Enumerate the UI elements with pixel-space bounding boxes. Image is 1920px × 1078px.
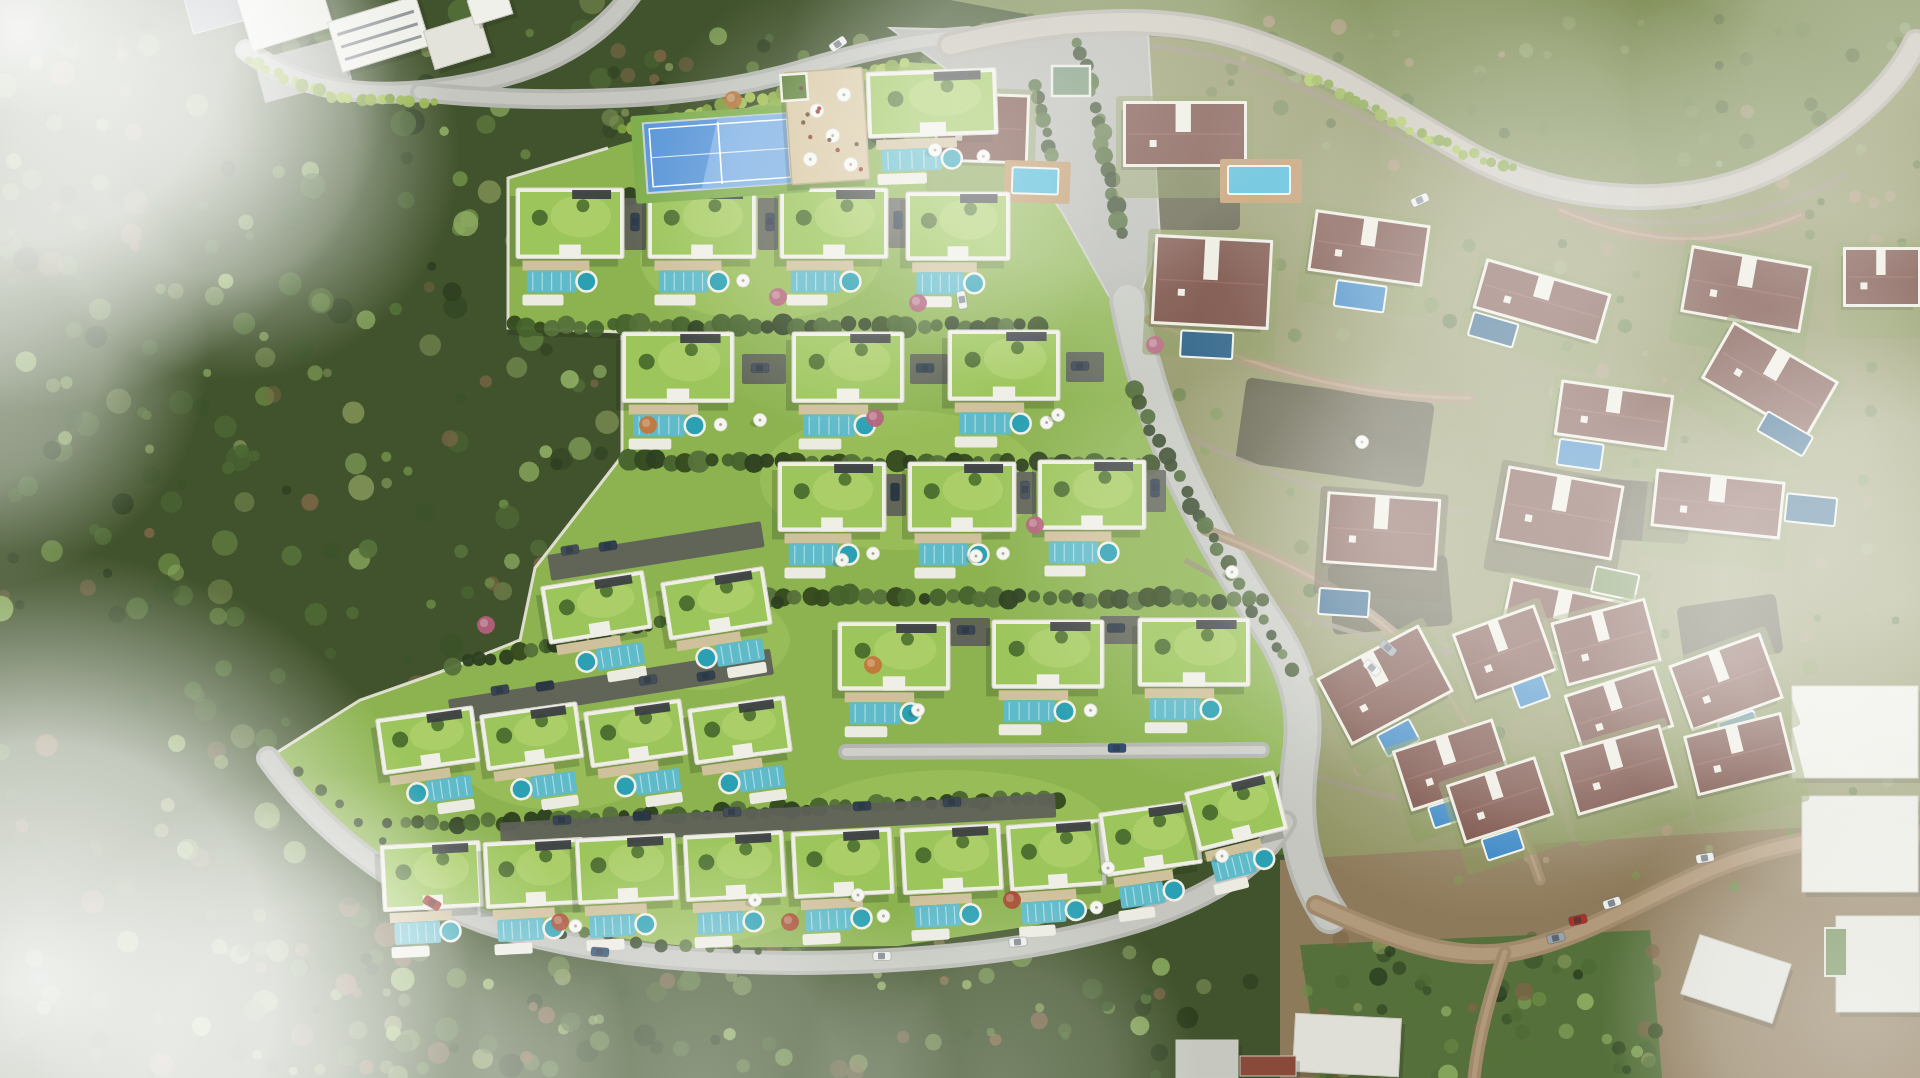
tree-highlight xyxy=(642,419,650,427)
tree-canopy xyxy=(654,50,667,63)
tree-canopy xyxy=(454,544,468,558)
car-windshield xyxy=(858,803,865,810)
stair-core xyxy=(883,676,905,690)
hedge-shrub xyxy=(524,643,539,658)
hedge-shrub xyxy=(839,584,860,605)
tree-canopy xyxy=(1369,968,1387,986)
tree-canopy xyxy=(1335,975,1349,989)
tree-canopy xyxy=(540,343,553,356)
stair-core xyxy=(667,389,689,403)
tree-canopy xyxy=(212,530,238,556)
tree-canopy xyxy=(1468,1003,1477,1012)
hedge-shrub xyxy=(557,316,575,334)
car-windshield xyxy=(496,686,504,693)
car-windshield xyxy=(702,672,710,679)
tree-canopy xyxy=(381,452,391,462)
tree-canopy xyxy=(177,481,186,490)
car-windshield xyxy=(566,546,574,553)
roof-tree xyxy=(532,210,548,226)
umbrella-pole xyxy=(759,419,762,422)
tree-canopy xyxy=(426,599,436,609)
terrace-deck xyxy=(522,261,589,271)
tree-canopy xyxy=(234,492,254,512)
building-roof xyxy=(1240,1056,1296,1076)
terrace-deck xyxy=(914,533,981,543)
tree-canopy xyxy=(1301,985,1313,997)
car-windshield xyxy=(638,813,645,820)
round-jacuzzi xyxy=(1162,879,1185,902)
tree-canopy xyxy=(307,365,322,380)
stair-core xyxy=(1143,855,1164,872)
pool-deck xyxy=(799,439,842,450)
round-jacuzzi xyxy=(718,772,741,795)
tree-canopy xyxy=(1559,1023,1574,1038)
round-jacuzzi xyxy=(614,775,637,798)
tree-canopy xyxy=(610,43,625,58)
tree-canopy xyxy=(607,66,620,79)
stair-core xyxy=(732,743,753,760)
tree-canopy xyxy=(419,334,441,356)
hedge-shrub xyxy=(705,453,718,466)
tree-canopy xyxy=(1444,1039,1459,1054)
tree-canopy xyxy=(1552,965,1561,974)
umbrella-pole xyxy=(719,423,722,426)
tree-canopy xyxy=(414,502,433,521)
hedge-shrub xyxy=(858,588,874,604)
car-windshield xyxy=(558,817,565,824)
tree-canopy xyxy=(476,115,495,134)
terrace-deck xyxy=(629,405,698,415)
tree-canopy xyxy=(595,410,619,434)
tree-canopy xyxy=(1441,1006,1451,1016)
tree-canopy xyxy=(214,415,236,437)
car xyxy=(943,797,961,807)
tree-canopy xyxy=(325,648,336,659)
tree-canopy xyxy=(342,402,364,424)
tree-canopy xyxy=(144,528,154,538)
tree-canopy xyxy=(485,578,495,588)
tree-canopy xyxy=(1489,1047,1508,1066)
terrace-deck xyxy=(845,692,914,702)
tree-highlight xyxy=(867,659,875,667)
tree-canopy xyxy=(506,357,527,378)
tree-canopy xyxy=(480,375,492,387)
tree-canopy xyxy=(305,603,328,626)
hedge-shrub xyxy=(897,589,915,607)
roof-tree xyxy=(576,199,589,212)
tree-highlight xyxy=(480,619,488,627)
hedge-shrub xyxy=(787,590,802,605)
car xyxy=(723,807,741,817)
roof-tree xyxy=(639,354,655,370)
solar-panels xyxy=(834,464,873,473)
tree-canopy xyxy=(1243,974,1259,990)
flat-roof-building xyxy=(1292,1013,1405,1078)
tree-canopy xyxy=(404,656,413,665)
hedge-shrub xyxy=(760,453,774,467)
pool-deck xyxy=(999,724,1042,735)
tree-canopy xyxy=(504,553,520,569)
tree-canopy xyxy=(519,462,539,482)
tree-canopy xyxy=(443,295,467,319)
car xyxy=(957,626,975,635)
solar-panels xyxy=(535,840,571,851)
tree-canopy xyxy=(424,282,435,293)
pool-deck xyxy=(914,567,955,578)
tree-canopy xyxy=(1423,986,1432,995)
tree-canopy xyxy=(1577,993,1594,1010)
tree-canopy xyxy=(1581,959,1596,974)
stair-core xyxy=(524,749,545,766)
tree-canopy xyxy=(161,491,183,513)
tree-canopy xyxy=(452,222,466,236)
stair-core xyxy=(951,517,973,531)
tree-canopy xyxy=(1515,1025,1530,1040)
umbrella-pole xyxy=(1221,855,1224,858)
car xyxy=(553,815,571,825)
tree-canopy xyxy=(1392,961,1406,975)
umbrella-pole xyxy=(872,552,875,555)
tree-canopy xyxy=(403,467,412,476)
stair-core xyxy=(420,753,441,770)
car-windshield xyxy=(728,809,735,816)
tree-canopy xyxy=(455,393,466,404)
building-roof xyxy=(1293,1013,1402,1076)
tree-canopy xyxy=(550,458,562,470)
car-windshield xyxy=(644,676,652,683)
tree-canopy xyxy=(1196,979,1211,994)
tree-canopy xyxy=(1573,970,1583,980)
stair-core xyxy=(559,245,581,259)
tree-canopy xyxy=(594,447,608,461)
tree-canopy xyxy=(1353,1003,1362,1012)
car-windshield xyxy=(892,488,898,495)
tree-canopy xyxy=(439,634,463,658)
hedge-shrub xyxy=(646,449,666,469)
tree-canopy xyxy=(621,109,629,117)
round-jacuzzi xyxy=(685,416,705,436)
stair-core xyxy=(821,517,843,531)
tree-canopy xyxy=(478,180,501,203)
hedge-shrub xyxy=(929,589,946,606)
tree-canopy xyxy=(442,430,459,447)
umbrella-pole xyxy=(841,559,844,562)
tree-canopy xyxy=(235,444,249,458)
aerial-site-render xyxy=(0,0,1920,1078)
roof-tree xyxy=(794,483,810,499)
car-windshield xyxy=(948,799,955,806)
tree-canopy xyxy=(1558,955,1572,969)
tree-canopy xyxy=(539,445,552,458)
solar-panels xyxy=(843,830,879,841)
umbrella-pole xyxy=(1107,867,1110,870)
solar-panels xyxy=(572,190,611,199)
tree-canopy xyxy=(323,369,332,378)
hedge-shrub xyxy=(444,658,462,676)
pool-deck xyxy=(784,567,825,578)
tree-canopy xyxy=(1403,988,1423,1008)
hedge-shrub xyxy=(484,653,496,665)
tree-canopy xyxy=(1333,931,1349,947)
hedge-shrub xyxy=(946,589,960,603)
tree-canopy xyxy=(348,475,374,501)
tree-canopy xyxy=(1532,992,1547,1007)
hedge-shrub xyxy=(618,124,627,133)
hedge-shrub xyxy=(573,321,587,335)
tree-canopy xyxy=(1418,973,1431,986)
car xyxy=(853,801,871,811)
hedge-shrub xyxy=(873,589,888,604)
tree-canopy xyxy=(324,543,340,559)
round-jacuzzi xyxy=(576,272,596,292)
tree-canopy xyxy=(495,505,519,529)
tree-canopy xyxy=(1302,964,1311,973)
tree-canopy xyxy=(359,539,378,558)
tree-canopy xyxy=(593,365,606,378)
tree-canopy xyxy=(346,607,358,619)
tree-canopy xyxy=(461,586,474,599)
solar-panels xyxy=(952,826,988,837)
tree-canopy xyxy=(345,453,366,474)
tree-canopy xyxy=(1519,1046,1533,1060)
tree-canopy xyxy=(590,379,598,387)
round-jacuzzi xyxy=(510,778,533,801)
solar-panels xyxy=(896,624,936,633)
umbrella-pole xyxy=(975,555,978,558)
stair-core xyxy=(1048,873,1068,888)
stair-core xyxy=(628,746,649,763)
tree-canopy xyxy=(264,386,281,403)
tree-canopy xyxy=(301,493,318,510)
tree-canopy xyxy=(282,485,292,495)
hedge-shrub xyxy=(587,320,604,337)
car xyxy=(633,811,651,821)
car-windshield xyxy=(604,542,612,549)
tree-canopy xyxy=(281,545,301,565)
hedge-shrub xyxy=(516,318,536,338)
tree-canopy xyxy=(526,29,534,37)
tree-canopy xyxy=(520,149,530,159)
tree-canopy xyxy=(381,478,392,489)
car-windshield xyxy=(962,627,969,633)
pool-deck xyxy=(522,295,563,306)
pool-deck xyxy=(955,437,998,448)
pool-deck xyxy=(845,726,888,737)
roof-tree xyxy=(901,633,914,646)
car-windshield xyxy=(541,682,549,689)
hedge-shrub xyxy=(771,596,784,609)
pool-deck xyxy=(629,439,672,450)
haze-cloud xyxy=(980,280,1500,800)
car xyxy=(891,483,900,501)
hedge-shrub xyxy=(629,313,650,334)
tree-canopy xyxy=(561,370,579,388)
tree-canopy xyxy=(601,109,618,126)
roof-tree xyxy=(924,483,940,499)
tree-canopy xyxy=(1515,983,1533,1001)
roof-tree xyxy=(855,643,871,659)
aerial-photo-stage xyxy=(0,0,1920,1078)
tree-canopy xyxy=(1377,1004,1388,1015)
tree-canopy xyxy=(1509,1009,1522,1022)
flat-roof-building xyxy=(1240,1056,1300,1078)
roof-tree xyxy=(838,473,851,486)
terrace-deck xyxy=(784,533,851,543)
tree-canopy xyxy=(621,68,636,83)
hedge-shrub xyxy=(472,652,486,666)
roof-tree xyxy=(968,473,981,486)
hedge-shrub xyxy=(919,593,931,605)
umbrella-pole xyxy=(917,709,920,712)
